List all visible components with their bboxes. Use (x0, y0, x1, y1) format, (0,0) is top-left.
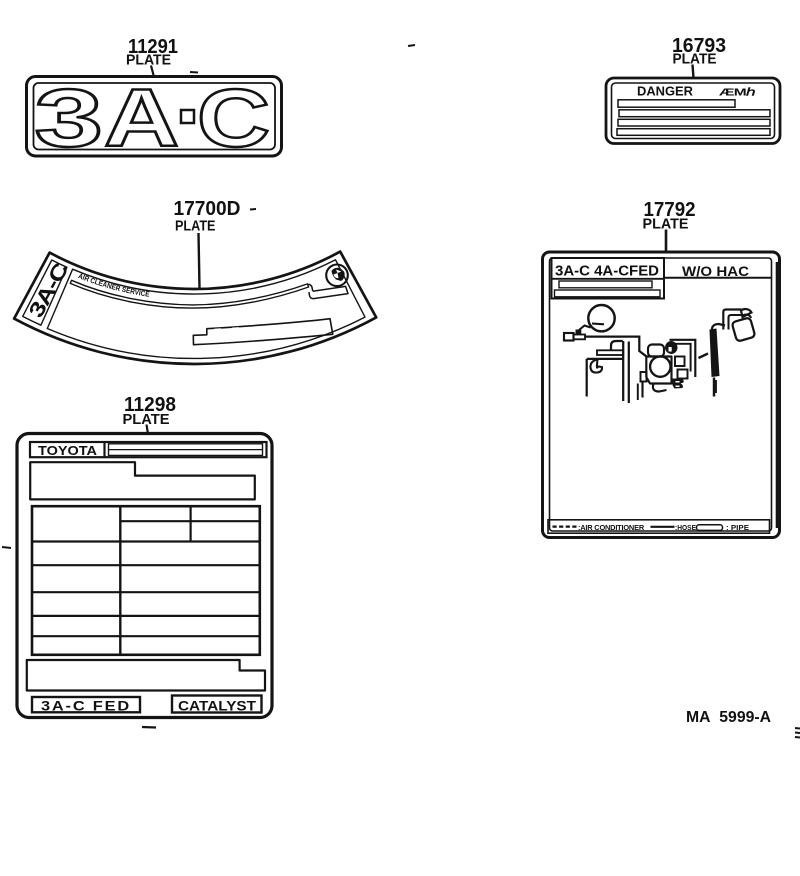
svg-text:PLATE: PLATE (175, 218, 216, 235)
svg-text:W/O HAC: W/O HAC (682, 263, 749, 279)
svg-text:DANGER: DANGER (637, 85, 693, 99)
svg-text:PLATE: PLATE (673, 51, 717, 68)
svg-text::AIR CONDITIONER: :AIR CONDITIONER (578, 523, 645, 532)
svg-text:MA 5999-A: MA 5999-A (686, 709, 771, 726)
svg-text:TOYOTA: TOYOTA (38, 443, 98, 458)
svg-text:3: 3 (35, 73, 104, 164)
svg-text:PLATE: PLATE (126, 52, 171, 69)
svg-text:CATALYST: CATALYST (178, 699, 257, 714)
svg-text:ÆMℎ: ÆMℎ (719, 87, 756, 99)
svg-text:: PIPE: : PIPE (726, 523, 749, 532)
svg-text:3A-C 4A-CFED: 3A-C 4A-CFED (555, 264, 659, 280)
svg-text:C: C (197, 73, 270, 164)
svg-text:A: A (104, 73, 179, 164)
svg-text::HOSE: :HOSE (675, 523, 696, 532)
svg-text:3A-C FED: 3A-C FED (41, 699, 131, 714)
